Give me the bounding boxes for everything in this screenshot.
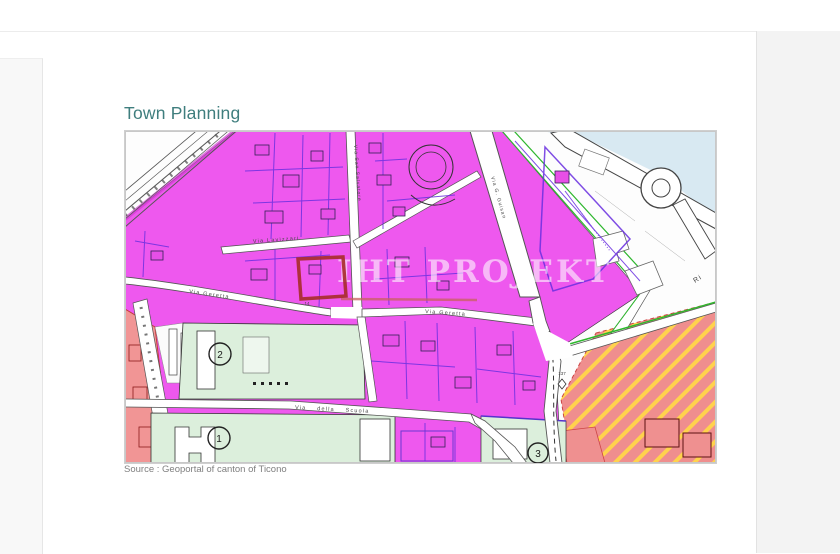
parcel-label-14: 14: [304, 301, 310, 306]
zoning-map-svg: IHT PROJEKT Via Lavizzari Via San Salvat…: [125, 131, 716, 463]
map-source-caption: Source : Geoportal of canton of Ticono: [124, 464, 287, 475]
parcel-label-137: 137: [558, 371, 566, 376]
zone-number-3: 3: [535, 449, 541, 460]
town-planning-map[interactable]: IHT PROJEKT Via Lavizzari Via San Salvat…: [124, 130, 717, 464]
left-gutter-panel: [0, 58, 43, 554]
zone-number-1: 1: [216, 434, 222, 445]
right-gutter-panel: [756, 31, 840, 553]
watermark-underline: [341, 299, 477, 300]
zone-number-2: 2: [217, 350, 223, 361]
watermark-text: IHT PROJEKT: [337, 254, 612, 290]
top-divider: [0, 31, 840, 32]
page-title: Town Planning: [124, 103, 240, 124]
